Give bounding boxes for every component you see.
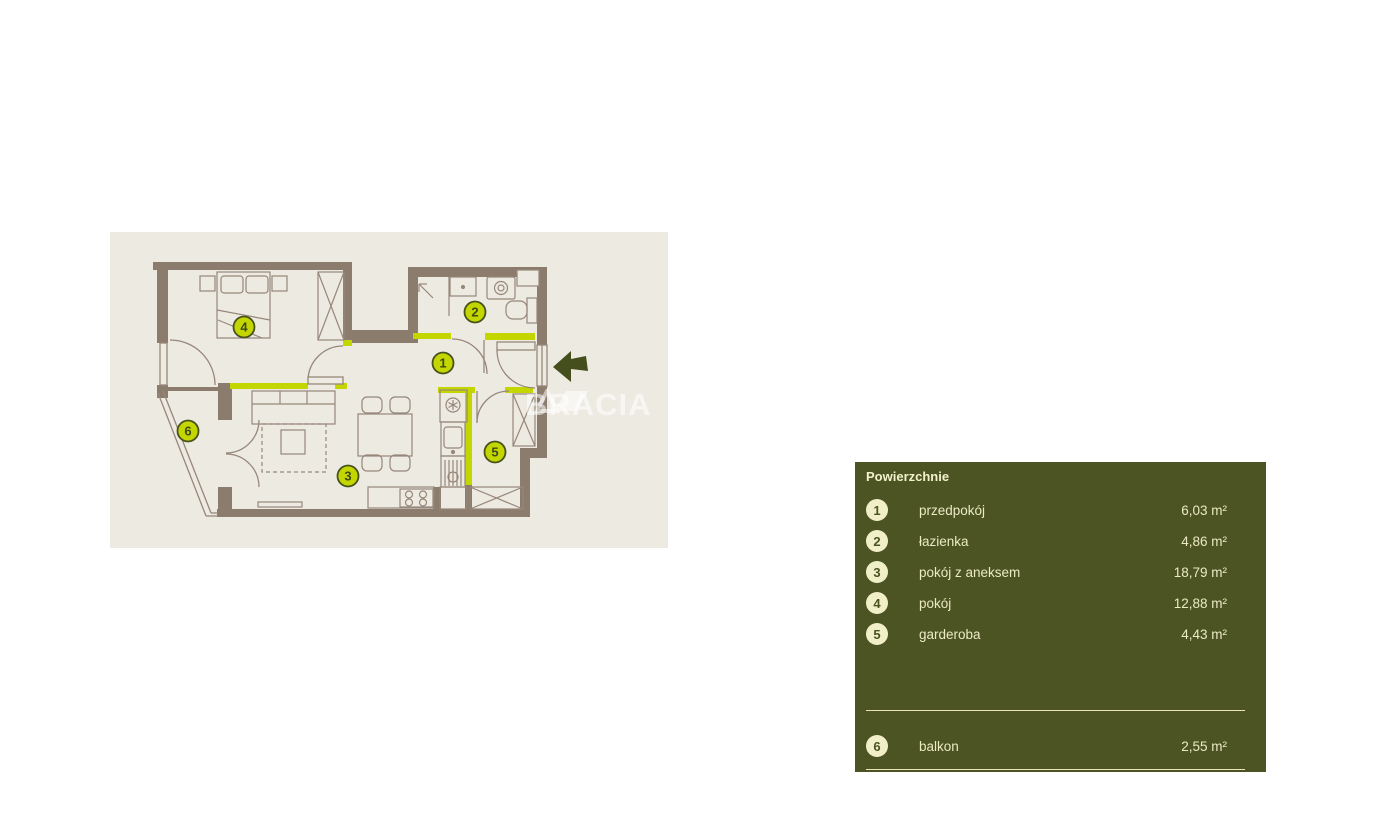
room-area: 18,79 m² [1174, 565, 1245, 580]
bathroom-door-arc [452, 339, 487, 374]
legend-row: 1 przedpokój 6,03 m² [866, 498, 1245, 522]
balcony-railing [158, 391, 218, 516]
washing-machine [487, 277, 515, 299]
bedroom-furniture [200, 272, 344, 340]
washbasin-tap [462, 286, 465, 289]
nightstand [200, 276, 215, 291]
legend-badge: 5 [866, 623, 888, 645]
stove [400, 489, 433, 507]
room-badge-5: 5 [485, 442, 506, 463]
entrance-door-leaf [497, 342, 535, 350]
window-segment [230, 383, 308, 389]
legend-badge: 6 [866, 735, 888, 757]
entrance-door-arc [497, 350, 535, 388]
panel-title: Powierzchnie [866, 469, 949, 484]
shower-icon [419, 284, 433, 298]
areas-panel: Powierzchnie 1 przedpokój 6,03 m² 2 łazi… [855, 462, 1266, 772]
kitchen-sink-tap [452, 451, 455, 454]
room-name: pokój z aneksem [919, 565, 1020, 580]
legend-row: 2 łazienka 4,86 m² [866, 529, 1245, 553]
room-name: pokój [919, 596, 951, 611]
window-segment [343, 340, 352, 346]
coffee-table [281, 430, 305, 454]
fridge [440, 487, 467, 509]
chair [362, 455, 382, 471]
kitchen-sink-basin [444, 427, 462, 448]
window-segment [413, 333, 451, 339]
separator-line [866, 710, 1245, 711]
bedroom-door-leaf [308, 377, 343, 384]
legend-badge: 2 [866, 530, 888, 552]
room-badge-6: 6 [178, 421, 199, 442]
toilet-bowl [506, 301, 527, 319]
window-segment [465, 390, 472, 485]
bedroom-balcony-door-arc [170, 340, 215, 385]
room-badge-1: 1 [433, 353, 454, 374]
svg-text:2: 2 [471, 305, 478, 320]
legend-row: 4 pokój 12,88 m² [866, 591, 1245, 615]
room-name: garderoba [919, 627, 981, 642]
listing-image: 1 2 3 4 5 [0, 0, 1379, 824]
room-badge-3: 3 [338, 466, 359, 487]
legend-row: 3 pokój z aneksem 18,79 m² [866, 560, 1245, 584]
svg-text:5: 5 [491, 445, 498, 460]
chair [390, 397, 410, 413]
nightstand [272, 276, 287, 291]
rug [262, 424, 326, 472]
wall-niche [517, 270, 539, 286]
pillow [221, 276, 243, 293]
legend-row: 6 balkon 2,55 m² [866, 734, 1245, 758]
legend-row: 5 garderoba 4,43 m² [866, 622, 1245, 646]
pillow [246, 276, 268, 293]
separator-line [866, 769, 1245, 770]
entrance-arrow-icon [553, 351, 588, 382]
legend-badge: 1 [866, 499, 888, 521]
svg-text:1: 1 [439, 356, 446, 371]
floor-plan-drawing: 1 2 3 4 5 [110, 232, 668, 548]
toilet-tank [527, 298, 537, 323]
dishwasher [441, 456, 465, 487]
room-name: przedpokój [919, 503, 985, 518]
window-segment [485, 333, 535, 340]
room-badge-4: 4 [234, 317, 255, 338]
svg-text:6: 6 [184, 424, 191, 439]
boiler-icon [446, 398, 460, 412]
room-name: łazienka [919, 534, 969, 549]
room-area: 4,86 m² [1181, 534, 1245, 549]
room-area: 2,55 m² [1181, 739, 1245, 754]
dining-table [358, 414, 412, 456]
floor-plan: 1 2 3 4 5 [110, 232, 668, 548]
garderoba-door-arc [477, 391, 509, 423]
bedroom-door-arc [308, 346, 343, 381]
room-badge-2: 2 [465, 302, 486, 323]
svg-text:4: 4 [240, 320, 248, 335]
legend-badge: 4 [866, 592, 888, 614]
room-area: 4,43 m² [1181, 627, 1245, 642]
chair [390, 455, 410, 471]
bedroom-balcony-door-leaf [160, 343, 167, 385]
room-name: balkon [919, 739, 959, 754]
svg-text:3: 3 [344, 469, 351, 484]
washing-machine-drum [498, 285, 504, 291]
room-area: 12,88 m² [1174, 596, 1245, 611]
room-area: 6,03 m² [1181, 503, 1245, 518]
balcony-french-door-arc [226, 420, 259, 453]
washing-machine-drum [495, 282, 508, 295]
chair [362, 397, 382, 413]
sofa [252, 391, 335, 424]
balcony-french-door-arc [226, 454, 259, 487]
legend-badge: 3 [866, 561, 888, 583]
tv-console [258, 502, 302, 507]
